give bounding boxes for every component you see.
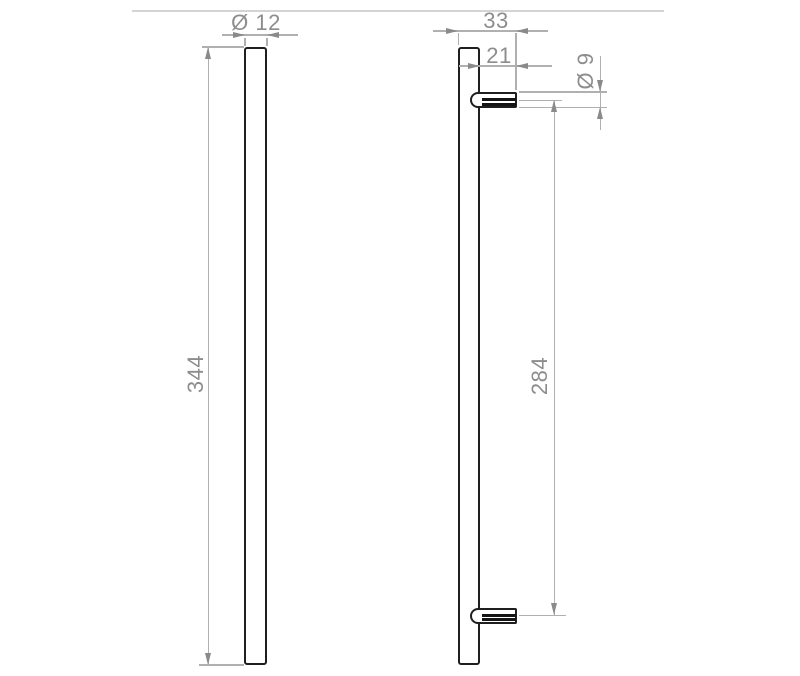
dim-label-projection-21: 21 xyxy=(486,45,511,67)
arrowhead-right-icon xyxy=(446,28,458,34)
dim-label-stud-diameter-9: Ø 9 xyxy=(575,53,597,90)
thread-line xyxy=(482,618,516,621)
arrowhead-down-icon xyxy=(597,80,603,92)
mounting-stud-bottom xyxy=(470,608,517,624)
extension-line xyxy=(458,33,460,45)
handle-bar-side-outline xyxy=(458,47,480,665)
handle-bar-front-outline xyxy=(244,47,267,665)
dim-label-length-344: 344 xyxy=(185,355,207,393)
extension-line xyxy=(202,46,244,48)
technical-drawing-canvas: Ø 12 344 33 21 xyxy=(0,0,800,676)
thread-line xyxy=(482,98,516,101)
extension-line xyxy=(266,38,268,46)
arrowhead-down-icon xyxy=(551,603,557,615)
dim-label-centres-284: 284 xyxy=(529,357,551,395)
arrowhead-left-icon xyxy=(516,28,528,34)
extension-line xyxy=(244,38,246,46)
arrowhead-up-icon xyxy=(551,100,557,112)
dim-label-depth-33: 33 xyxy=(483,10,508,32)
arrowhead-left-icon xyxy=(516,63,528,69)
page-top-rule xyxy=(132,10,664,12)
extension-line xyxy=(519,91,607,93)
extension-line xyxy=(519,107,607,109)
dim-line-centres-284 xyxy=(554,100,556,615)
arrowhead-up-icon xyxy=(597,107,603,119)
extension-line xyxy=(515,33,517,90)
arrowhead-up-icon xyxy=(205,47,211,59)
arrowhead-right-icon xyxy=(468,63,480,69)
mounting-stud-top xyxy=(470,92,517,108)
dim-label-diameter-12: Ø 12 xyxy=(231,12,281,34)
extension-line xyxy=(519,615,566,617)
thread-line xyxy=(482,103,516,106)
extension-line xyxy=(199,664,244,666)
thread-line xyxy=(482,614,516,617)
